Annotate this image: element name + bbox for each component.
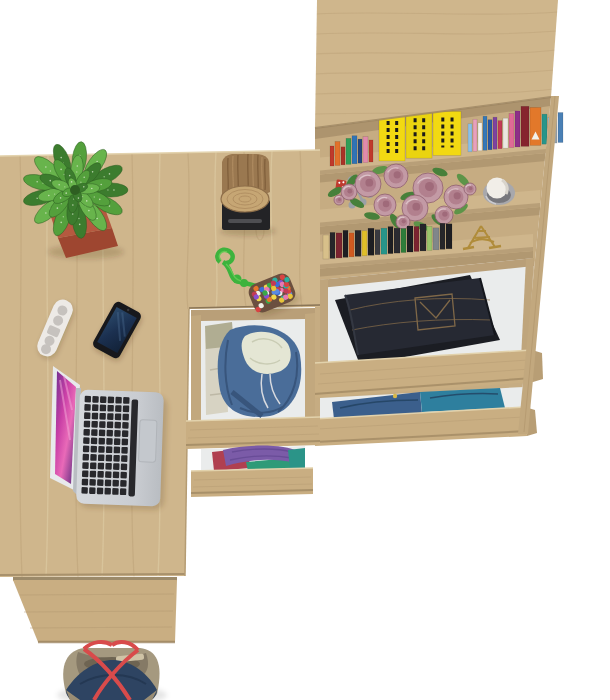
book-spine — [558, 113, 563, 143]
leaf-speckle — [73, 198, 74, 199]
keyboard-key — [99, 413, 106, 420]
rose — [334, 195, 344, 205]
keyboard-key — [99, 429, 106, 436]
leaf-speckle — [91, 188, 93, 190]
book-spine — [433, 111, 461, 155]
book-spine — [375, 230, 380, 255]
keyboard-key — [123, 405, 130, 412]
leaf-speckle — [60, 157, 62, 159]
keyboard-key — [81, 487, 88, 494]
keyboard-key — [115, 413, 122, 420]
book-spine — [521, 106, 529, 146]
keyboard-key — [99, 438, 106, 445]
leaf-speckle — [72, 213, 74, 215]
book-spine — [379, 115, 405, 161]
book-spine — [509, 114, 514, 148]
book-spine — [362, 231, 367, 256]
book-spine — [407, 226, 413, 252]
book-spine — [346, 138, 351, 164]
leaf-speckle — [58, 184, 60, 186]
drawer-side-rail — [191, 315, 201, 421]
book-spine — [368, 228, 374, 255]
keyboard-key — [115, 405, 122, 412]
keyboard-key — [112, 480, 119, 487]
leaf-speckle — [79, 224, 81, 226]
keyboard-key — [100, 396, 107, 403]
book-spine — [483, 116, 487, 150]
drawer-jeans — [314, 258, 543, 398]
drawer-side-rail — [320, 279, 328, 366]
leaf-speckle — [78, 218, 79, 219]
leaf-speckle — [45, 212, 47, 214]
leaf-speckle — [72, 204, 74, 206]
book-spine — [355, 230, 361, 256]
keyboard-key — [122, 414, 129, 421]
keyboard-key — [82, 470, 89, 477]
book-spine — [446, 224, 452, 249]
keyboard-key — [84, 412, 91, 419]
leaf-speckle — [96, 161, 98, 163]
book-spine — [335, 141, 340, 165]
scene — [0, 0, 610, 700]
leaf-speckle — [100, 184, 102, 186]
book-spine — [488, 120, 492, 150]
keyboard-key — [120, 472, 127, 479]
book-spine — [341, 147, 345, 165]
leaf-speckle — [77, 165, 79, 167]
keyboard-key — [121, 447, 128, 454]
keyboard-key — [123, 397, 130, 404]
keyboard-key — [120, 480, 127, 487]
book-spine — [401, 229, 406, 253]
keyboard-key — [97, 471, 104, 478]
leaf-speckle — [96, 218, 98, 220]
book-spine — [388, 227, 393, 254]
leaf-speckle — [83, 176, 85, 178]
pedestal-drawer-unit — [186, 308, 320, 497]
leaf-speckle — [69, 175, 71, 177]
keyboard-key — [104, 488, 111, 495]
stump-lamp — [220, 154, 276, 236]
rose — [435, 206, 453, 224]
leaf-speckle — [107, 189, 108, 190]
keyboard-key — [99, 421, 106, 428]
keyboard-key — [83, 437, 90, 444]
leaf-speckle — [99, 199, 101, 201]
book-spine — [330, 232, 335, 258]
book-spine — [363, 137, 368, 163]
book-spine — [358, 139, 362, 163]
leaf-speckle — [49, 180, 51, 182]
rose — [374, 194, 396, 216]
book-spine — [323, 235, 329, 259]
keyboard-key — [89, 487, 96, 494]
keyboard-key — [89, 479, 96, 486]
keyboard-key — [84, 404, 91, 411]
leaf-speckle — [113, 189, 115, 191]
book-spine — [343, 230, 348, 257]
keyboard-key — [106, 446, 113, 453]
keyboard-key — [92, 404, 99, 411]
leaf-speckle — [76, 171, 77, 172]
book-spine — [515, 111, 520, 147]
keyboard-key — [121, 455, 128, 462]
keyboard-key — [83, 446, 90, 453]
keyboard-key — [98, 454, 105, 461]
keyboard-key — [113, 471, 120, 478]
desk-front-panel — [13, 577, 177, 642]
keyboard-key — [105, 463, 112, 470]
leaf-speckle — [83, 186, 85, 188]
keyboard-key — [90, 471, 97, 478]
leaf-speckle — [71, 181, 73, 183]
leaf-speckle — [64, 186, 65, 187]
book-spine — [394, 228, 400, 253]
book-spine — [330, 146, 334, 166]
leaf-speckle — [50, 170, 51, 171]
leaf-speckle — [88, 210, 90, 212]
keyboard-key — [122, 422, 129, 429]
bookcase — [314, 0, 563, 446]
rose — [384, 164, 408, 188]
leaf-speckle — [36, 197, 38, 199]
book-spine — [369, 140, 373, 162]
leaf-speckle — [109, 205, 111, 207]
keyboard-key — [84, 421, 91, 428]
teal-cloth — [288, 448, 305, 469]
book-spine — [498, 121, 502, 149]
leaf-speckle — [45, 166, 47, 168]
keyboard-key — [115, 397, 122, 404]
keyboard-key — [114, 447, 121, 454]
book-spine — [530, 107, 541, 145]
keyboard-key — [113, 463, 120, 470]
hoodie — [218, 325, 302, 417]
book-spine — [414, 226, 419, 251]
keyboard-key — [100, 405, 107, 412]
book-spine — [381, 228, 387, 254]
keyboard-key — [120, 488, 127, 495]
pedestal-drawer-hoodie — [205, 322, 301, 417]
keyboard-key — [97, 479, 104, 486]
book-spine — [427, 226, 432, 250]
keyboard-key — [92, 396, 99, 403]
leaf-speckle — [36, 181, 38, 183]
keyboard-key — [114, 438, 121, 445]
keyboard-key — [82, 479, 89, 486]
lamp-base-slot — [228, 219, 262, 223]
leaf-speckle — [103, 176, 104, 177]
book-spine — [420, 224, 426, 251]
book-spine — [433, 228, 439, 250]
leaf-speckle — [60, 169, 62, 171]
keyboard-key — [122, 439, 129, 446]
keyboard-key — [90, 462, 97, 469]
keyboard-key — [83, 454, 90, 461]
keyboard-key — [91, 446, 98, 453]
leaf-speckle — [54, 193, 55, 194]
book-spine — [406, 112, 432, 158]
keyboard-key — [107, 405, 114, 412]
book-spine — [493, 117, 497, 149]
keyboard-key — [105, 479, 112, 486]
book-spine — [473, 119, 477, 151]
keyboard-key — [92, 413, 99, 420]
keyboard-key — [107, 413, 114, 420]
keyboard-key — [106, 455, 113, 462]
keyboard-key — [112, 488, 119, 495]
keyboard-key — [97, 488, 104, 495]
book-spine — [503, 118, 508, 148]
keyboard-key — [121, 463, 128, 470]
leaf-speckle — [65, 192, 67, 194]
leaf-speckle — [63, 216, 64, 217]
keyboard-key — [106, 438, 113, 445]
leaf-speckle — [78, 197, 80, 199]
leaf-speckle — [80, 182, 81, 183]
book-spine — [349, 233, 354, 257]
laptop-trackpad — [139, 420, 157, 463]
book-spine — [478, 123, 482, 151]
rose — [355, 171, 381, 197]
book-spine — [336, 233, 342, 258]
keyboard-key — [85, 396, 92, 403]
keyboard-key — [114, 430, 121, 437]
drawer-side-rail — [305, 313, 315, 420]
rose — [464, 183, 476, 195]
keyboard-key — [98, 446, 105, 453]
succulent-center — [70, 185, 80, 195]
keyboard-key — [108, 397, 115, 404]
leaf-speckle — [60, 222, 62, 224]
stump — [221, 154, 270, 212]
leaf-speckle — [57, 207, 59, 209]
keyboard-key — [98, 463, 105, 470]
book-spine — [542, 114, 547, 144]
keyboard-key — [114, 422, 121, 429]
keyboard-key — [122, 430, 129, 437]
keyboard-key — [91, 429, 98, 436]
keyboard-key — [113, 455, 120, 462]
keyboard-key — [91, 437, 98, 444]
keyboard-key — [105, 471, 112, 478]
book-spine — [468, 124, 472, 152]
leaf-speckle — [109, 173, 111, 175]
leaf-speckle — [48, 195, 50, 197]
keyboard-key — [82, 462, 89, 469]
keyboard-key — [91, 421, 98, 428]
leaf-speckle — [86, 200, 88, 202]
leaf-speckle — [92, 171, 94, 173]
keyboard-key — [90, 454, 97, 461]
book-spine — [352, 136, 357, 164]
keyboard-key — [106, 430, 113, 437]
keyboard-key — [83, 429, 90, 436]
leaf-speckle — [60, 197, 62, 199]
leaf-speckle — [61, 203, 62, 204]
keyboard-key — [107, 421, 114, 428]
book-spine — [440, 223, 445, 249]
leaf-speckle — [94, 196, 95, 197]
